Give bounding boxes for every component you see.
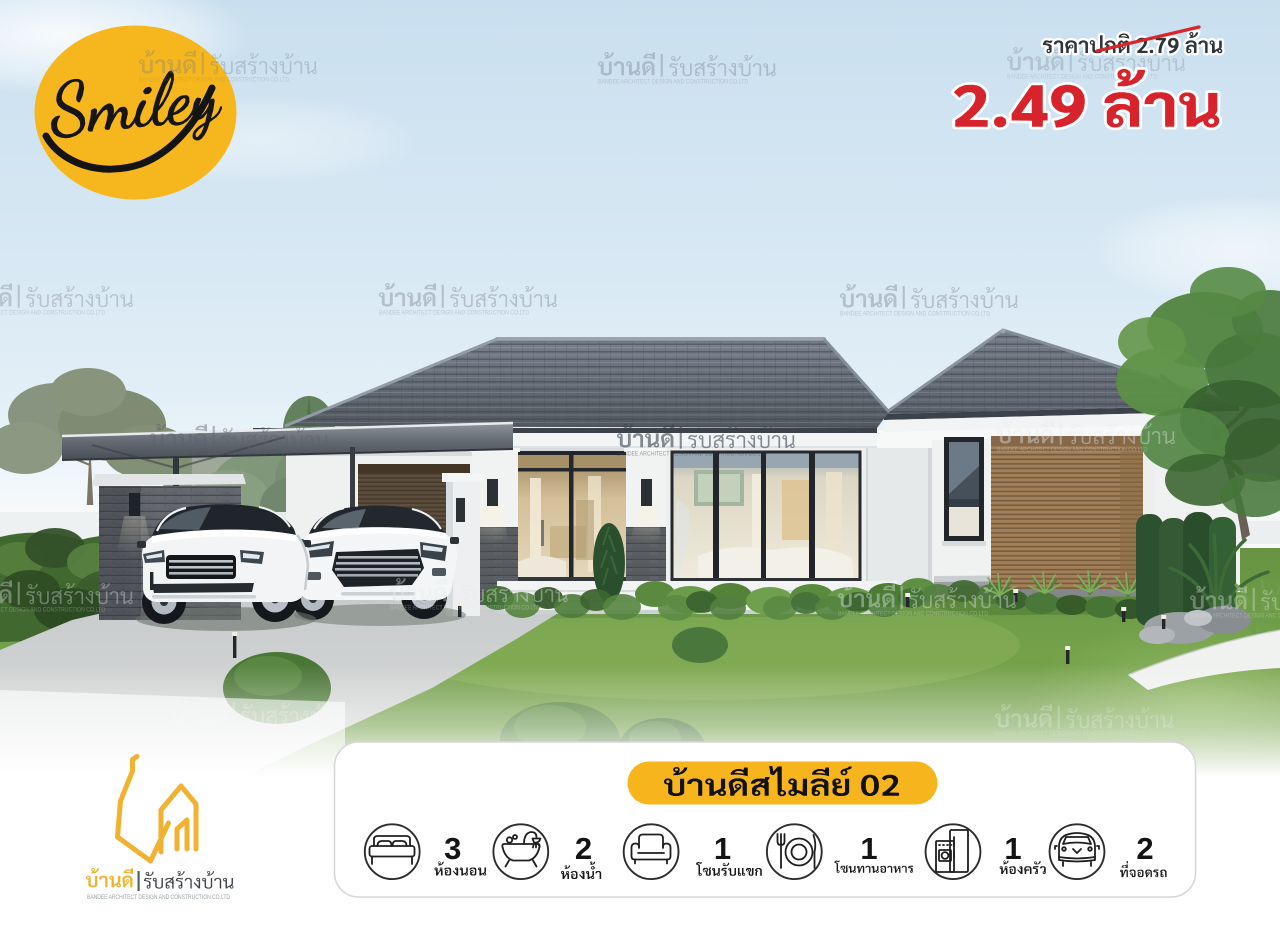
svg-text:BANDEE ARCHITECT DESIGN AND: BANDEE ARCHITECT DESIGN AND CONSTRUCTION… xyxy=(598,78,749,85)
svg-text:BANDEE ARCHITECT DESIGN AND: BANDEE ARCHITECT DESIGN AND CONSTRUCTION… xyxy=(840,310,991,317)
svg-text:BANDEE ARCHITECT DESIGN AND: BANDEE ARCHITECT DESIGN AND CONSTRUCTION… xyxy=(150,450,301,457)
svg-text:1: 1 xyxy=(714,831,731,866)
svg-text:2: 2 xyxy=(575,831,592,866)
svg-text:2: 2 xyxy=(1136,831,1153,866)
svg-text:3: 3 xyxy=(444,831,461,866)
svg-text:BANDEE ARCHITECT DESIGN AND: BANDEE ARCHITECT DESIGN AND CONSTRUCTION… xyxy=(838,610,989,617)
svg-text:BANDEE ARCHITECT DESIGN AND: BANDEE ARCHITECT DESIGN AND CONSTRUCTION… xyxy=(139,76,290,83)
svg-text:BANDEE ARCHITECT DESIGN AND: BANDEE ARCHITECT DESIGN AND CONSTRUCTION… xyxy=(617,450,768,457)
svg-text:1: 1 xyxy=(860,831,877,866)
svg-text:BANDEE ARCHITECT DESIGN AND: BANDEE ARCHITECT DESIGN AND CONSTRUCTION… xyxy=(0,606,106,613)
svg-text:BANDEE ARCHITECT DESIGN AND: BANDEE ARCHITECT DESIGN AND CONSTRUCTION… xyxy=(390,604,541,611)
svg-text:BANDEE ARCHITECT DESIGN AND: BANDEE ARCHITECT DESIGN AND CONSTRUCTION… xyxy=(0,309,106,316)
svg-text:1: 1 xyxy=(1004,831,1021,866)
svg-text:BANDEE ARCHITECT DESIGN AND: BANDEE ARCHITECT DESIGN AND CONSTRUCTION… xyxy=(379,309,530,316)
svg-text:BANDEE ARCHITECT DESIGN AND: BANDEE ARCHITECT DESIGN AND CONSTRUCTION… xyxy=(997,446,1148,453)
svg-text:BANDEE ARCHITECT DESIGN AND: BANDEE ARCHITECT DESIGN AND CONSTRUCTION… xyxy=(1190,612,1280,619)
svg-text:BANDEE ARCHITECT DESIGN AND: BANDEE ARCHITECT DESIGN AND CONSTRUCTION… xyxy=(87,894,230,901)
